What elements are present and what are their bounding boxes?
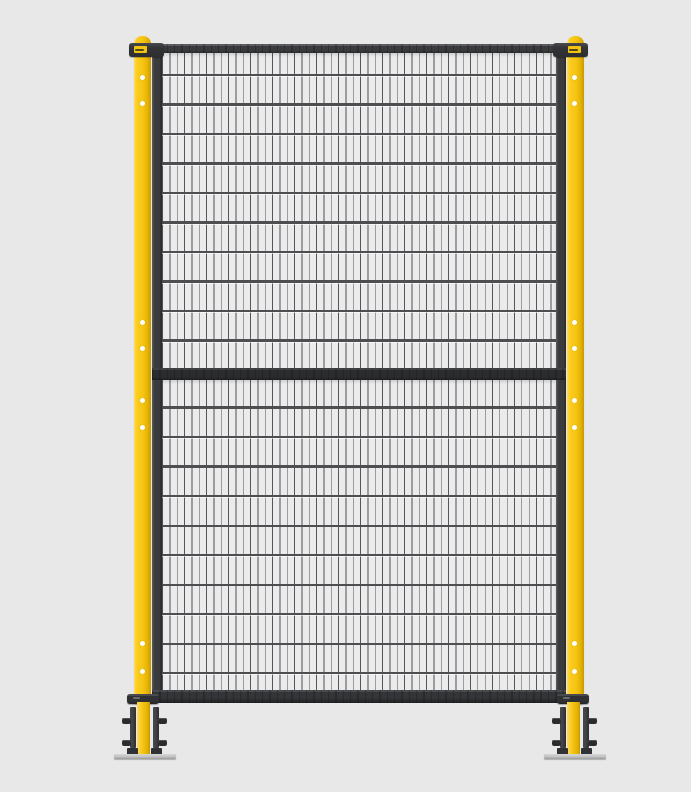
post-mounting-hole bbox=[572, 641, 577, 646]
bolt-icon bbox=[552, 718, 561, 724]
wire-end-ticks bbox=[152, 368, 566, 380]
post-mounting-hole bbox=[572, 669, 577, 674]
bolt-icon bbox=[158, 718, 167, 724]
post-mounting-hole bbox=[140, 101, 145, 106]
wire-end-ticks bbox=[152, 44, 566, 53]
panel-bottom-rail bbox=[152, 690, 566, 703]
bolt-icon bbox=[552, 740, 561, 746]
post-mounting-hole bbox=[140, 346, 145, 351]
brand-sticker-icon bbox=[134, 46, 147, 53]
post-mounting-hole bbox=[572, 101, 577, 106]
post-mounting-hole bbox=[140, 75, 145, 80]
wire-end-ticks bbox=[152, 690, 566, 703]
bolt-icon bbox=[122, 740, 131, 746]
safety-fence-product-image bbox=[0, 0, 691, 792]
foot-spigot-tube bbox=[567, 702, 580, 756]
bolt-icon bbox=[588, 718, 597, 724]
post-mounting-hole bbox=[572, 75, 577, 80]
panel-middle-joint-rail bbox=[152, 368, 566, 380]
bolt-icon bbox=[122, 718, 131, 724]
post-mounting-hole bbox=[572, 346, 577, 351]
brand-sticker-icon bbox=[568, 46, 581, 53]
top-mounting-bracket-left bbox=[129, 43, 164, 57]
mesh-panel-lower-section bbox=[162, 380, 556, 690]
floor-mount-foot-right bbox=[543, 694, 607, 764]
floor-mount-foot-left bbox=[113, 694, 177, 764]
post-mounting-hole bbox=[572, 425, 577, 430]
post-mounting-hole bbox=[140, 669, 145, 674]
foot-spigot-tube bbox=[137, 702, 150, 756]
bolt-icon bbox=[588, 740, 597, 746]
post-mounting-hole bbox=[140, 320, 145, 325]
post-mounting-hole bbox=[140, 641, 145, 646]
base-plate bbox=[114, 754, 176, 759]
post-mounting-hole bbox=[140, 425, 145, 430]
mesh-panel-upper-section bbox=[162, 53, 556, 368]
base-plate bbox=[544, 754, 606, 759]
panel-top-rail bbox=[152, 44, 566, 53]
bolt-icon bbox=[158, 740, 167, 746]
post-mounting-hole bbox=[572, 398, 577, 403]
post-mounting-hole bbox=[140, 398, 145, 403]
top-mounting-bracket-right bbox=[553, 43, 588, 57]
post-mounting-hole bbox=[572, 320, 577, 325]
